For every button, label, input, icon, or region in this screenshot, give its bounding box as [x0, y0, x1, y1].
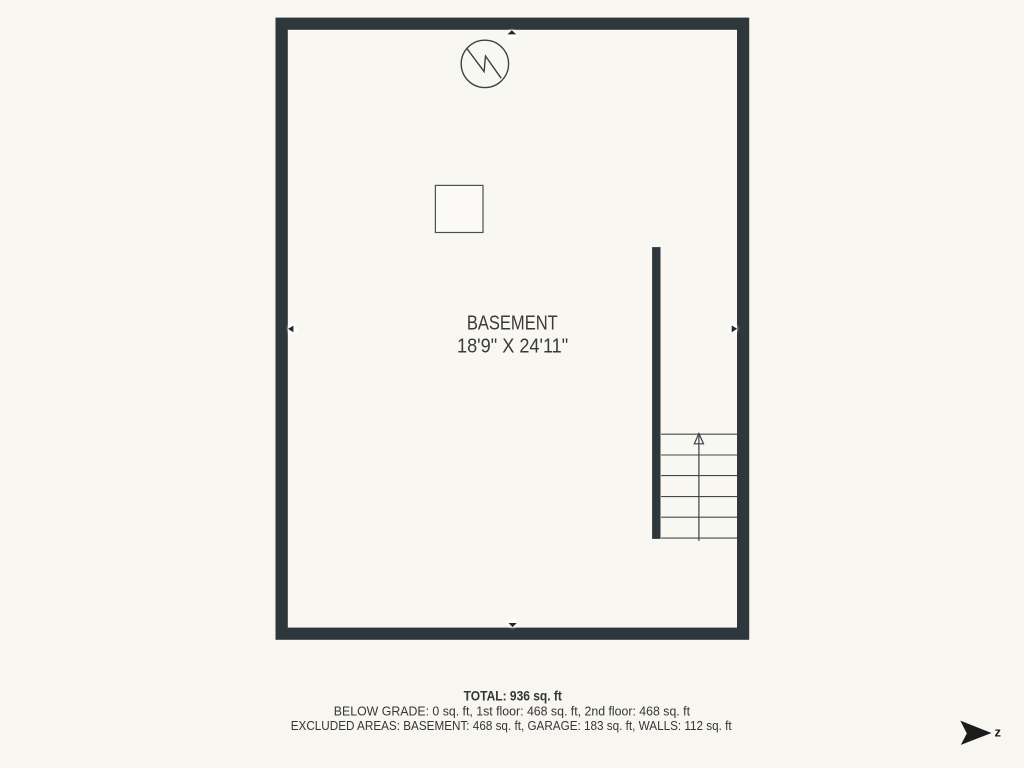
- svg-text:BASEMENT: BASEMENT: [467, 311, 558, 334]
- svg-text:TOTAL: 936 sq. ft: TOTAL: 936 sq. ft: [464, 688, 563, 704]
- svg-text:EXCLUDED AREAS: BASEMENT: 468: EXCLUDED AREAS: BASEMENT: 468 sq. ft, GA…: [291, 718, 732, 733]
- svg-text:BELOW GRADE: 0 sq. ft, 1st flo: BELOW GRADE: 0 sq. ft, 1st floor: 468 sq…: [334, 704, 691, 718]
- svg-text:18'9" X 24'11": 18'9" X 24'11": [457, 336, 568, 358]
- svg-text:z: z: [995, 724, 1002, 739]
